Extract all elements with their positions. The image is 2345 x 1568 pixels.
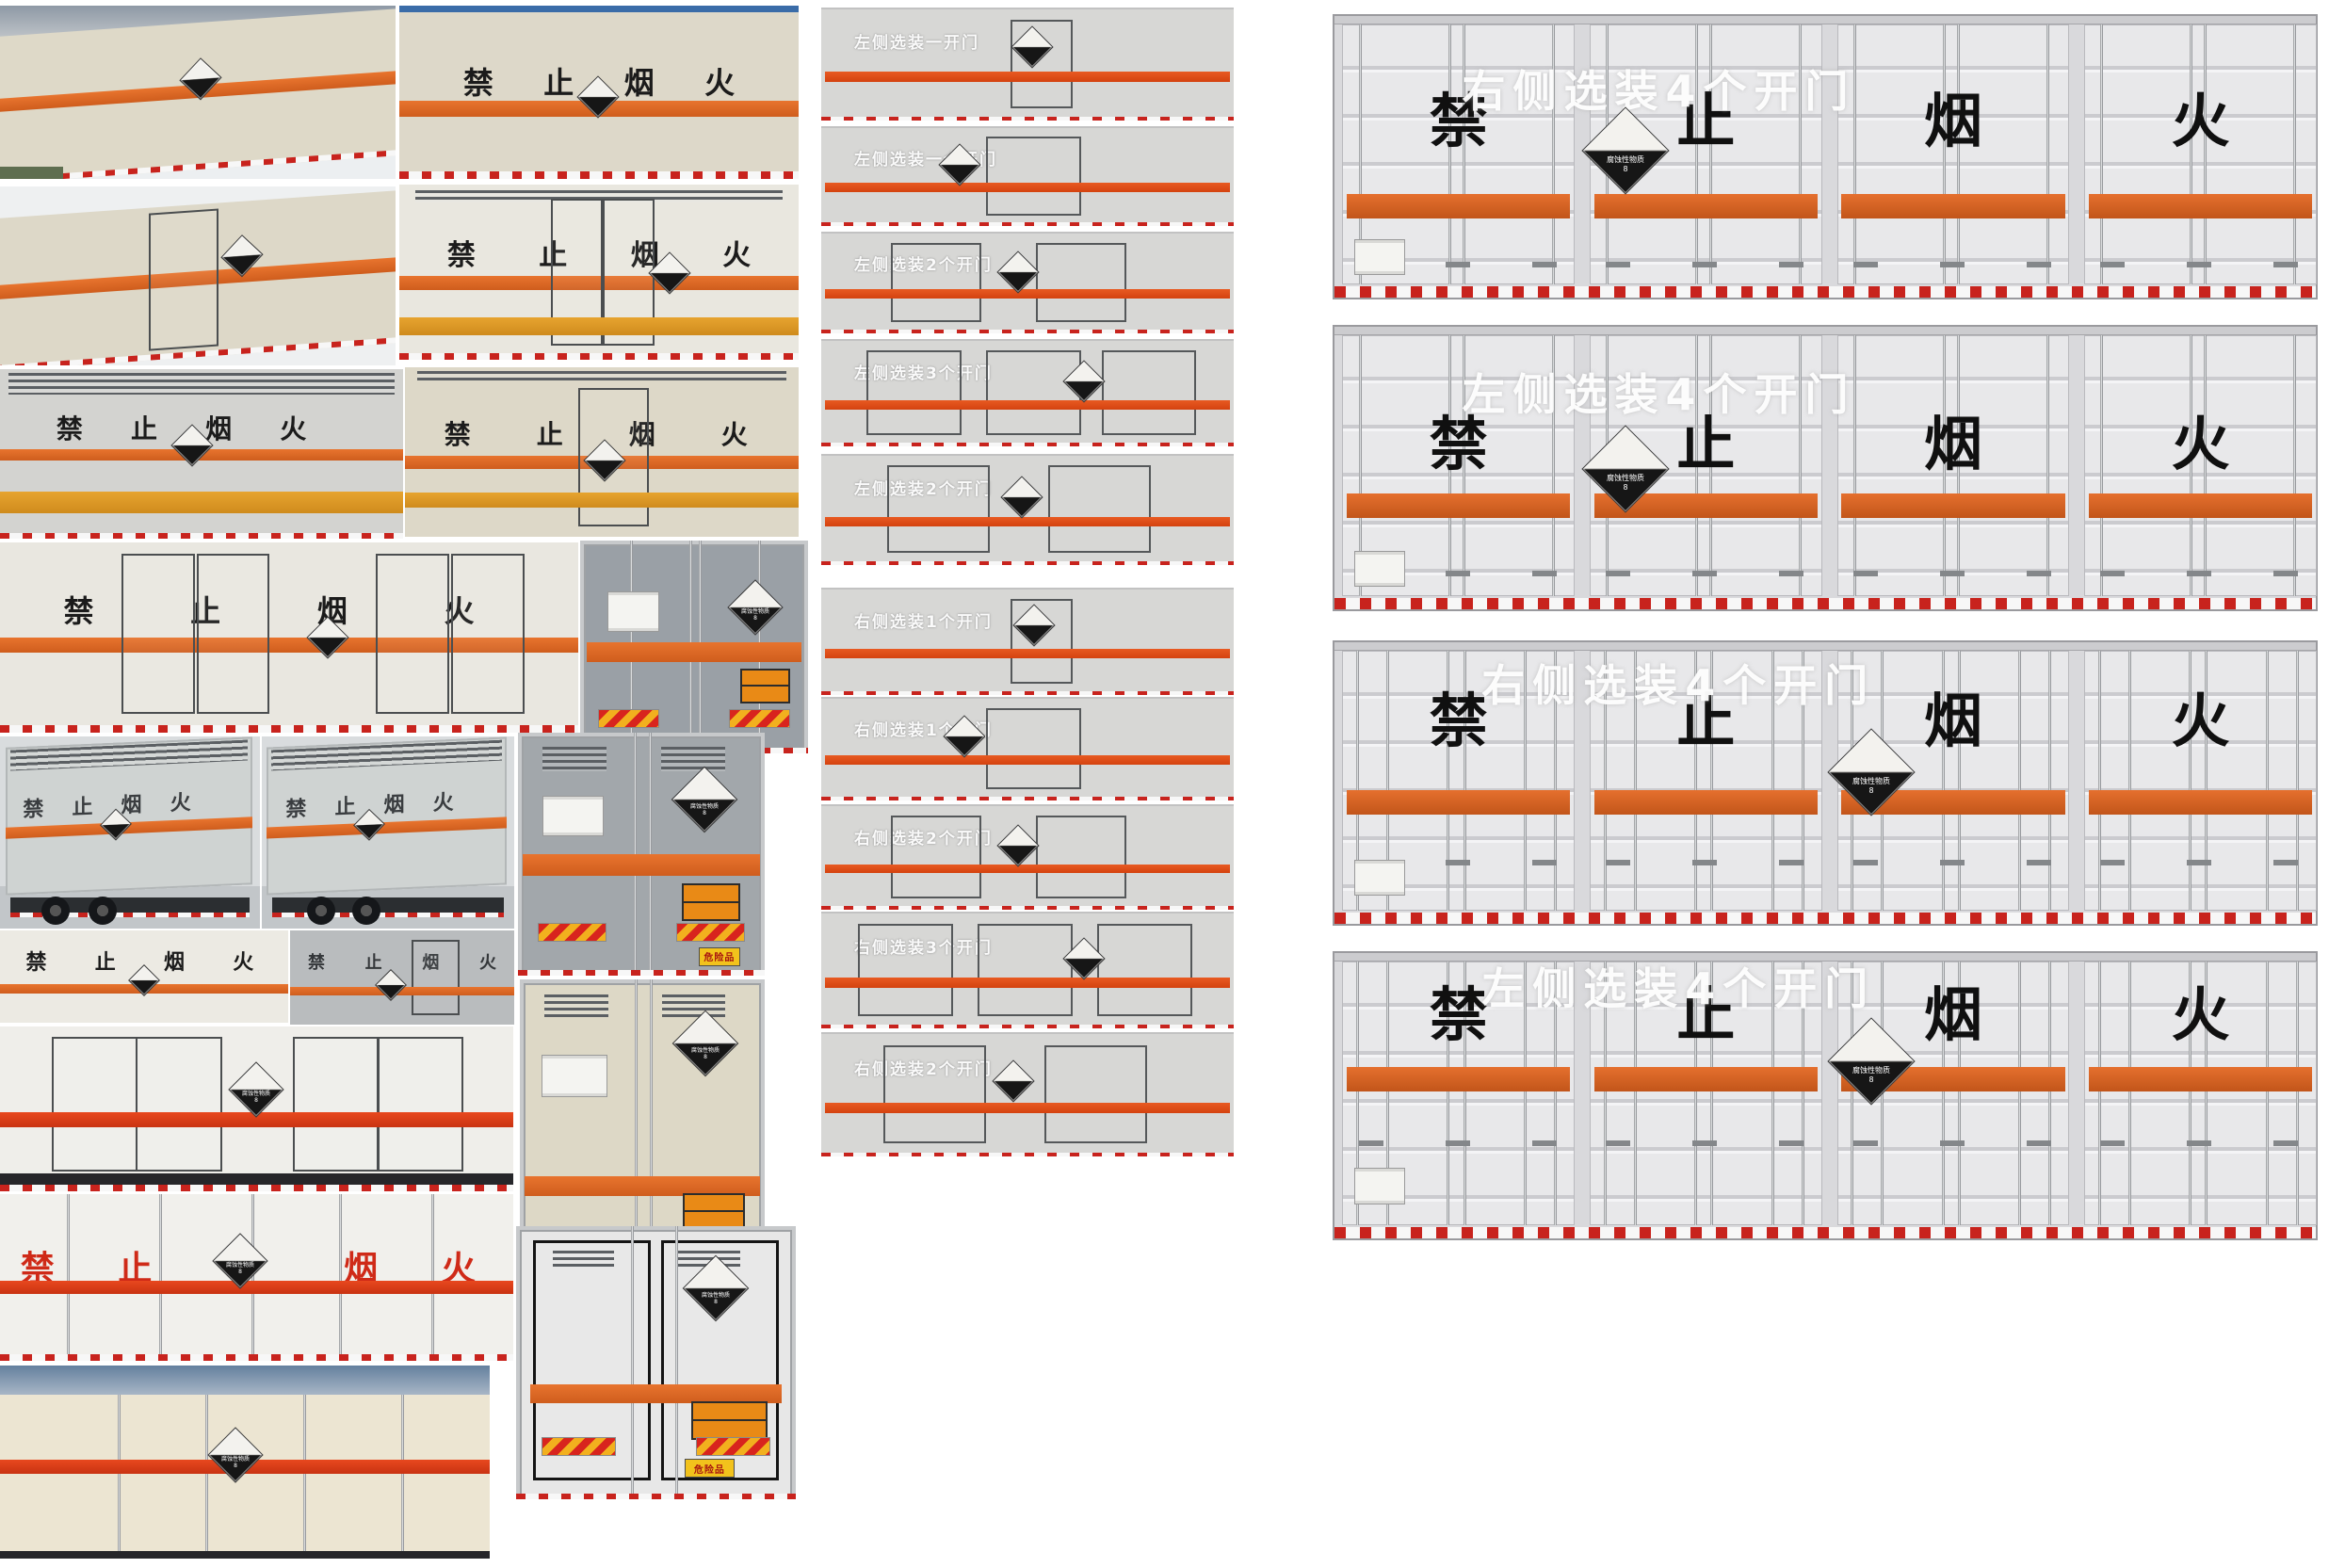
orange-stripe — [825, 183, 1229, 191]
door-vent — [661, 747, 725, 771]
option-photo-band-4: 左侧选装3个开门 — [821, 339, 1234, 446]
option-caption: 左侧选装一开门 — [854, 29, 979, 53]
rear-chevron-marking — [729, 709, 790, 728]
door-handles — [2100, 571, 2300, 576]
photo-van-side-warning-2: 禁 止 烟 火 — [399, 185, 799, 360]
orange-stripe — [825, 400, 1229, 410]
side-door-outline — [293, 1037, 379, 1172]
side-door-outline — [1044, 1045, 1147, 1143]
orange-stripe — [825, 289, 1229, 299]
orange-hazard-plate — [740, 669, 789, 704]
roof-slats — [10, 740, 248, 771]
no-fire-char: 火 — [2084, 92, 2317, 151]
rear-chevron-marking — [598, 709, 659, 728]
photo-collage-sheet: 禁 止 烟 火 禁 止 烟 火 — [0, 0, 2345, 1568]
door-handles — [2100, 1140, 2300, 1146]
photo-van-rear-1: 腐蚀性物质8 — [580, 541, 808, 753]
amber-band — [399, 317, 799, 335]
info-plate — [542, 796, 604, 836]
side-door-outline — [883, 1045, 986, 1143]
side-door-outline — [891, 243, 981, 323]
door-handles — [1606, 1140, 1805, 1146]
roof-slats — [8, 373, 396, 395]
photo-van-rear-3: 腐蚀性物质8 — [520, 979, 765, 1232]
danger-goods-sign: 危险品 — [699, 947, 740, 966]
option-photo-band-3: 左侧选装2个开门 — [821, 232, 1234, 333]
door-bay: 火 — [2084, 962, 2317, 1225]
photo-van-side-sky: 腐蚀性物质8 — [0, 1366, 490, 1559]
no-fire-char: 烟 — [1837, 415, 2070, 474]
no-fire-char: 火 — [2084, 692, 2317, 751]
roof-rails — [417, 371, 787, 381]
van-body — [0, 8, 396, 179]
reflective-strip — [821, 691, 1234, 695]
door-handles — [1853, 1140, 2053, 1146]
orange-stripe — [825, 978, 1229, 988]
reflective-strip — [399, 171, 799, 179]
door-handles — [1853, 262, 2053, 267]
option-photo-band-5: 左侧选装2个开门 — [821, 454, 1234, 565]
photo-van-side-perspective-2 — [0, 186, 396, 365]
info-plate — [542, 1055, 607, 1097]
truck-side-panel-2: 禁 止 烟 火 — [1333, 325, 2318, 611]
no-fire-char: 火 — [2084, 415, 2317, 474]
door-lock-rod — [2018, 651, 2021, 911]
orange-stripe — [825, 517, 1229, 526]
photo-van-rear-2: 腐蚀性物质8 危险品 — [518, 733, 765, 976]
photo-van-side-warning-3: 禁 止 烟 火 — [0, 369, 403, 539]
side-door-outline — [1036, 243, 1126, 323]
photo-van-side-doors-1: 腐蚀性物质8 — [0, 1026, 513, 1191]
wheel — [41, 897, 70, 925]
hazard-placard-icon: 腐蚀性物质8 — [228, 1061, 283, 1117]
option-photo-band-7: 右侧选装1个开门 — [821, 697, 1234, 800]
door-lock-rod — [2048, 651, 2051, 911]
top-rail — [1334, 16, 2316, 24]
side-door-outline — [866, 350, 961, 435]
hazard-placard-icon: 腐蚀性物质8 — [671, 767, 738, 833]
door-bay: 火 — [2084, 24, 2317, 284]
truck-side-panel-4: 禁 止 烟 — [1333, 951, 2318, 1240]
door-bay: 火 — [2084, 651, 2317, 911]
no-fire-char: 禁 — [1342, 415, 1575, 474]
option-caption: 右侧选装1个开门 — [854, 608, 993, 632]
reflective-strip — [821, 1153, 1234, 1156]
truck-side-panel-3: 禁 止 烟 — [1333, 640, 2318, 926]
reflective-strip — [821, 561, 1234, 565]
info-plate — [1354, 1168, 1405, 1204]
reflective-strip — [1334, 286, 2316, 298]
orange-stripe — [587, 642, 801, 661]
reflective-strip — [821, 117, 1234, 121]
option-caption: 左侧选装4个开门 — [1481, 955, 1875, 1017]
option-photo-band-6: 右侧选装1个开门 — [821, 588, 1234, 695]
door-lock-rod — [159, 1194, 162, 1361]
orange-stripe — [1841, 493, 2064, 518]
no-fire-text: 禁 止 烟 火 — [308, 955, 496, 972]
hazard-placard-icon: 腐蚀性物质8 — [207, 1427, 263, 1482]
orange-stripe — [1594, 790, 1818, 815]
orange-stripe — [825, 72, 1229, 82]
reflective-strip — [516, 1494, 796, 1499]
orange-stripe — [1347, 493, 1570, 518]
side-door-outline — [1048, 465, 1151, 553]
top-rail — [1334, 327, 2316, 335]
no-fire-char: 烟 — [1837, 92, 2070, 151]
hazard-placard-icon — [996, 251, 1039, 294]
cargo-box: 禁 止 烟 火 — [6, 736, 252, 896]
reflective-strip — [821, 906, 1234, 910]
photo-truck-three-quarter-2: 禁 止 烟 火 — [262, 736, 514, 929]
amber-band — [0, 492, 403, 513]
reflective-strip — [518, 970, 765, 976]
reflective-strip — [0, 725, 578, 733]
rear-chevron-marking — [538, 923, 606, 942]
door-lock-rod — [67, 1194, 70, 1361]
reflective-strip — [399, 353, 799, 360]
reflective-strip — [0, 1354, 513, 1361]
orange-stripe — [2089, 493, 2312, 518]
orange-hazard-plate — [682, 883, 740, 921]
side-door-outline — [858, 924, 952, 1016]
reflective-strip — [0, 533, 403, 539]
side-door-outline — [986, 350, 1080, 435]
truck-side-panel-1: 禁 止 烟 火 — [1333, 14, 2318, 299]
photo-van-side-warning-5: 禁 止 烟 火 — [0, 542, 578, 733]
orange-stripe — [1347, 790, 1570, 815]
door-handles — [1606, 860, 1805, 865]
van-body: 腐蚀性物质8 — [0, 1395, 490, 1551]
orange-stripe — [825, 649, 1229, 658]
orange-stripe — [1594, 1067, 1818, 1091]
side-door-outline — [136, 1037, 221, 1172]
van-body — [0, 190, 396, 365]
side-door-outline — [149, 209, 218, 351]
door-lock-rod — [675, 1226, 678, 1499]
lower-frame-band — [0, 1551, 490, 1559]
door-vent — [553, 1251, 614, 1269]
photo-truck-three-quarter-1: 禁 止 烟 火 — [0, 736, 260, 929]
info-plate — [1354, 551, 1405, 587]
door-lock-rod — [2266, 651, 2269, 911]
option-photo-band-2: 左侧选装一个开门 — [821, 126, 1234, 226]
photo-van-rear-4: 腐蚀性物质8 危险品 — [516, 1226, 796, 1499]
reflective-strip — [821, 443, 1234, 446]
side-door-outline — [1097, 924, 1191, 1016]
wheel — [307, 897, 335, 925]
door-handles — [2100, 262, 2300, 267]
door-bay: 火 — [2084, 335, 2317, 596]
option-caption: 右侧选装4个开门 — [1462, 57, 1855, 120]
orange-stripe — [2089, 790, 2312, 815]
door-bay: 烟 — [1837, 335, 2070, 596]
rear-chevron-marking — [542, 1437, 616, 1455]
side-door-outline — [986, 708, 1080, 789]
side-door-outline — [891, 816, 981, 898]
door-lock-rod — [431, 1194, 434, 1361]
sky-strip — [399, 6, 799, 12]
door-bay: 烟 — [1837, 24, 2070, 284]
door-lock-rod — [631, 1226, 634, 1499]
side-door-outline — [451, 554, 525, 714]
orange-stripe — [1347, 1067, 1570, 1091]
side-door-outline — [978, 924, 1072, 1016]
side-door-outline — [1011, 20, 1072, 108]
option-caption: 右侧选装4个开门 — [1481, 652, 1875, 714]
hazard-placard-icon: 腐蚀性物质8 — [671, 1010, 738, 1077]
door-handles — [1853, 860, 2053, 865]
orange-stripe — [825, 865, 1229, 874]
side-door-outline — [52, 1037, 137, 1172]
orange-stripe — [825, 1103, 1229, 1114]
side-door-outline — [378, 1037, 463, 1172]
photo-van-side-warning-4: 禁 止 烟 火 — [405, 367, 799, 537]
hazard-placard-icon — [375, 969, 407, 1001]
danger-goods-sign: 危险品 — [685, 1459, 734, 1477]
option-photo-band-8: 右侧选装2个开门 — [821, 804, 1234, 910]
photo-van-side-warning-7: 禁 止 烟 火 — [290, 930, 514, 1025]
side-door-outline — [412, 940, 461, 1015]
orange-stripe — [825, 755, 1229, 765]
top-rail — [1334, 642, 2316, 651]
orange-stripe — [523, 854, 760, 876]
door-lock-rod — [2293, 24, 2296, 284]
door-lock-rod — [2128, 651, 2131, 911]
door-lock-rod — [2098, 651, 2101, 911]
door-lock-rod — [2296, 651, 2299, 911]
side-door-outline — [1102, 350, 1196, 435]
roof-slats — [271, 740, 501, 771]
orange-hazard-plate — [691, 1401, 768, 1441]
grass-ground — [0, 167, 63, 179]
reflective-strip — [1334, 913, 2316, 924]
door-handles — [1853, 571, 2053, 576]
door-lock-rod — [2046, 24, 2049, 284]
lower-frame-band — [0, 1173, 513, 1185]
info-plate — [1354, 239, 1405, 275]
reflective-strip — [821, 330, 1234, 333]
photo-van-side-perspective-1 — [0, 6, 396, 179]
sky-background — [0, 1366, 490, 1395]
hazard-placard-icon — [996, 825, 1039, 867]
photo-van-side-warning-1: 禁 止 烟 火 — [399, 6, 799, 179]
photo-van-side-warning-6: 禁 止 烟 火 — [0, 930, 288, 1023]
orange-stripe — [2089, 1067, 2312, 1091]
orange-stripe — [1347, 194, 1570, 218]
door-handles — [1359, 1140, 1559, 1146]
no-fire-char: 火 — [2084, 986, 2317, 1044]
red-orange-stripe — [0, 1281, 513, 1294]
amber-band — [405, 493, 799, 508]
side-door-outline — [986, 137, 1080, 215]
hazard-placard-icon: 腐蚀性物质8 — [727, 579, 783, 635]
door-handles — [2100, 860, 2300, 865]
wheel — [352, 897, 380, 925]
reflective-strip — [1334, 1227, 2316, 1238]
door-handles — [1606, 571, 1805, 576]
door-vent — [542, 747, 606, 771]
orange-stripe — [1841, 194, 2064, 218]
side-door-outline — [121, 554, 195, 714]
hazard-placard-icon — [1000, 476, 1043, 518]
door-vent — [544, 994, 608, 1017]
reflective-strip — [821, 797, 1234, 800]
hazard-placard-icon — [993, 1059, 1035, 1102]
rear-chevron-marking — [696, 1437, 770, 1455]
reflective-strip — [0, 1185, 513, 1191]
side-door-outline — [197, 554, 270, 714]
orange-stripe — [1594, 194, 1818, 218]
door-vent — [662, 994, 726, 1017]
orange-hazard-plate — [683, 1193, 745, 1230]
orange-stripe — [2089, 194, 2312, 218]
reflective-strip — [821, 1025, 1234, 1028]
door-lock-rod — [339, 1194, 342, 1361]
side-door-outline — [1036, 816, 1126, 898]
side-door-outline — [376, 554, 449, 714]
side-door-outline — [887, 465, 990, 553]
info-plate — [607, 591, 659, 632]
wheel — [89, 897, 117, 925]
door-lock-rod — [2100, 24, 2103, 284]
option-photo-band-10: 右侧选装2个开门 — [821, 1032, 1234, 1156]
reflective-strip — [821, 222, 1234, 226]
option-photo-band-9: 右侧选装3个开门 — [821, 912, 1234, 1028]
door-handles — [1606, 262, 1805, 267]
reflective-strip — [1334, 598, 2316, 609]
info-plate — [1354, 860, 1405, 896]
option-photo-band-1: 左侧选装一开门 — [821, 8, 1234, 121]
option-caption: 左侧选装4个开门 — [1462, 361, 1855, 423]
photo-van-side-warning-red: 禁 止 烟 火 腐蚀性物质8 — [0, 1194, 513, 1361]
rear-chevron-marking — [676, 923, 745, 942]
cargo-box: 禁 止 烟 火 — [267, 737, 507, 896]
